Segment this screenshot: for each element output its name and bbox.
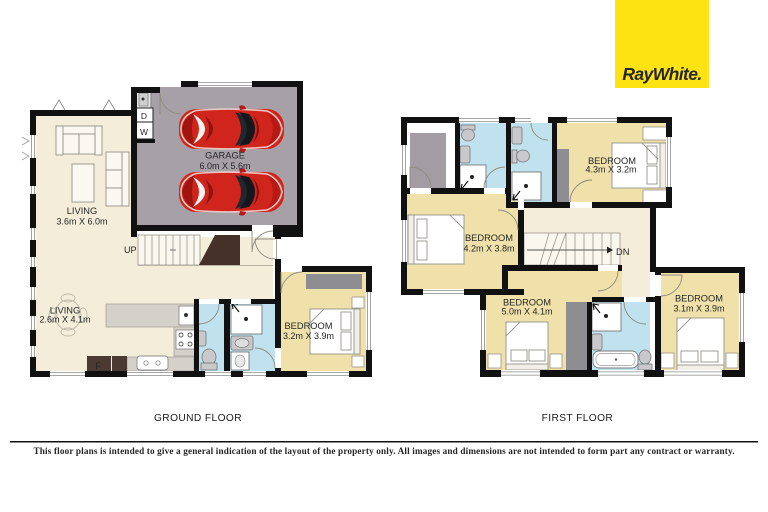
svg-text:5.0m X 4.1m: 5.0m X 4.1m bbox=[501, 307, 552, 317]
svg-text:2.6m X 4.1m: 2.6m X 4.1m bbox=[39, 315, 90, 325]
svg-text:FIRST FLOOR: FIRST FLOOR bbox=[542, 413, 614, 424]
svg-text:This floor plans is intended t: This floor plans is intended to give a g… bbox=[34, 446, 735, 456]
svg-text:LIVING: LIVING bbox=[67, 206, 97, 216]
svg-text:UP: UP bbox=[124, 245, 137, 255]
svg-text:4.2m X 3.8m: 4.2m X 3.8m bbox=[463, 244, 514, 254]
svg-text:BEDROOM: BEDROOM bbox=[284, 321, 332, 331]
svg-text:D: D bbox=[141, 111, 147, 121]
svg-text:RayWhite.: RayWhite. bbox=[622, 64, 701, 84]
svg-text:BEDROOM: BEDROOM bbox=[465, 233, 513, 243]
svg-text:4.3m X 3.2m: 4.3m X 3.2m bbox=[585, 165, 636, 175]
svg-text:BEDROOM: BEDROOM bbox=[675, 294, 723, 304]
svg-text:3.6m X 6.0m: 3.6m X 6.0m bbox=[56, 217, 107, 227]
svg-text:F: F bbox=[95, 361, 101, 371]
svg-text:6.0m X 5.6m: 6.0m X 5.6m bbox=[199, 161, 250, 171]
svg-text:GROUND FLOOR: GROUND FLOOR bbox=[154, 413, 242, 424]
svg-text:3.1m X 3.9m: 3.1m X 3.9m bbox=[673, 304, 724, 314]
svg-text:DN: DN bbox=[616, 247, 629, 257]
svg-text:GARAGE: GARAGE bbox=[205, 151, 245, 161]
svg-text:3.2m X 3.9m: 3.2m X 3.9m bbox=[283, 331, 334, 341]
svg-text:W: W bbox=[140, 127, 148, 137]
